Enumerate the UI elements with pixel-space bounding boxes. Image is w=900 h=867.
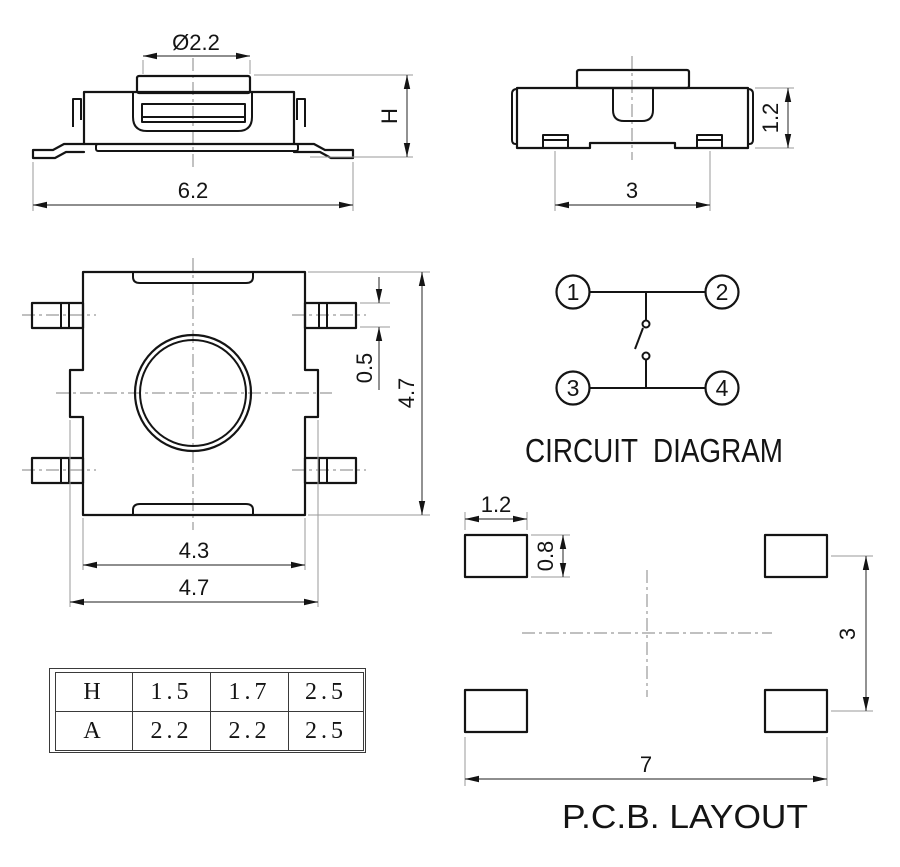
dim-row-pitch: 3 xyxy=(835,628,860,640)
front-view: Ø2.2 H 6.2 xyxy=(33,30,413,211)
terminal-4-label: 4 xyxy=(716,375,729,401)
circuit-diagram-title: CIRCUIT DIAGRAM xyxy=(525,432,783,469)
top-view: 0.5 4.7 4.3 4.7 xyxy=(22,258,430,607)
pcb-pad-bottom-left xyxy=(465,690,527,732)
pcb-layout: 1.2 0.8 3 7 P.C.B. LAYOUT xyxy=(465,492,873,835)
dim-pad-width: 1.2 xyxy=(481,492,512,517)
side-view-dimensions: 1.2 3 xyxy=(555,88,794,211)
front-left-lead xyxy=(33,144,84,158)
side-button xyxy=(577,70,689,88)
side-right-foot xyxy=(697,135,722,148)
dim-pad-height: 0.8 xyxy=(533,541,558,572)
front-right-clip xyxy=(297,99,305,127)
technical-drawing-page: Ø2.2 H 6.2 1.2 3 xyxy=(0,0,900,867)
terminal-3-label: 3 xyxy=(567,375,580,401)
dim-foot-pitch: 3 xyxy=(626,178,638,203)
table-row-a: A 2.2 2.2 2.5 xyxy=(56,712,364,751)
table-row-h: H 1.5 1.7 2.5 xyxy=(56,673,364,712)
terminal-2-label: 2 xyxy=(716,279,729,305)
switch-contact-upper xyxy=(643,321,650,328)
front-left-clip xyxy=(73,99,81,127)
dim-lead-width: 0.5 xyxy=(352,353,377,384)
pcb-layout-title: P.C.B. LAYOUT xyxy=(562,798,808,835)
dim-overall-height: 4.7 xyxy=(394,378,419,409)
pcb-pad-top-right xyxy=(765,535,827,577)
row-a-value-1: 2.2 xyxy=(133,712,211,751)
row-h-value-3: 2.5 xyxy=(289,673,364,712)
switch-contact-lower xyxy=(643,353,650,360)
dim-height-h: H xyxy=(377,108,402,124)
dim-pad-span: 7 xyxy=(640,752,652,777)
row-a-value-2: 2.2 xyxy=(211,712,289,751)
row-a-value-3: 2.5 xyxy=(289,712,364,751)
dim-top-overall-width: 4.7 xyxy=(179,575,210,600)
switch-arm xyxy=(635,328,643,349)
pcb-pad-top-left xyxy=(465,535,527,577)
row-a-label: A xyxy=(56,712,133,751)
dim-body-height: 1.2 xyxy=(758,103,783,134)
front-view-dimensions: Ø2.2 H 6.2 xyxy=(33,30,413,211)
front-right-lead xyxy=(294,144,353,158)
top-view-dimensions: 0.5 4.7 4.3 4.7 xyxy=(70,272,430,607)
circuit-diagram: 1 2 3 4 CIRCUIT DIAGRAM xyxy=(525,276,783,470)
side-left-foot xyxy=(543,135,568,148)
dim-button-diameter: Ø2.2 xyxy=(172,30,220,55)
side-center-notch xyxy=(613,88,653,121)
dim-overall-width: 6.2 xyxy=(178,178,209,203)
row-h-value-1: 1.5 xyxy=(133,673,211,712)
row-h-label: H xyxy=(56,673,133,712)
dim-body-width: 4.3 xyxy=(179,538,210,563)
spec-table: H 1.5 1.7 2.5 A 2.2 2.2 2.5 xyxy=(55,672,364,751)
terminal-1-label: 1 xyxy=(567,279,580,305)
row-h-value-2: 1.7 xyxy=(211,673,289,712)
side-view: 1.2 3 xyxy=(512,56,794,211)
pcb-pad-bottom-right xyxy=(765,690,827,732)
